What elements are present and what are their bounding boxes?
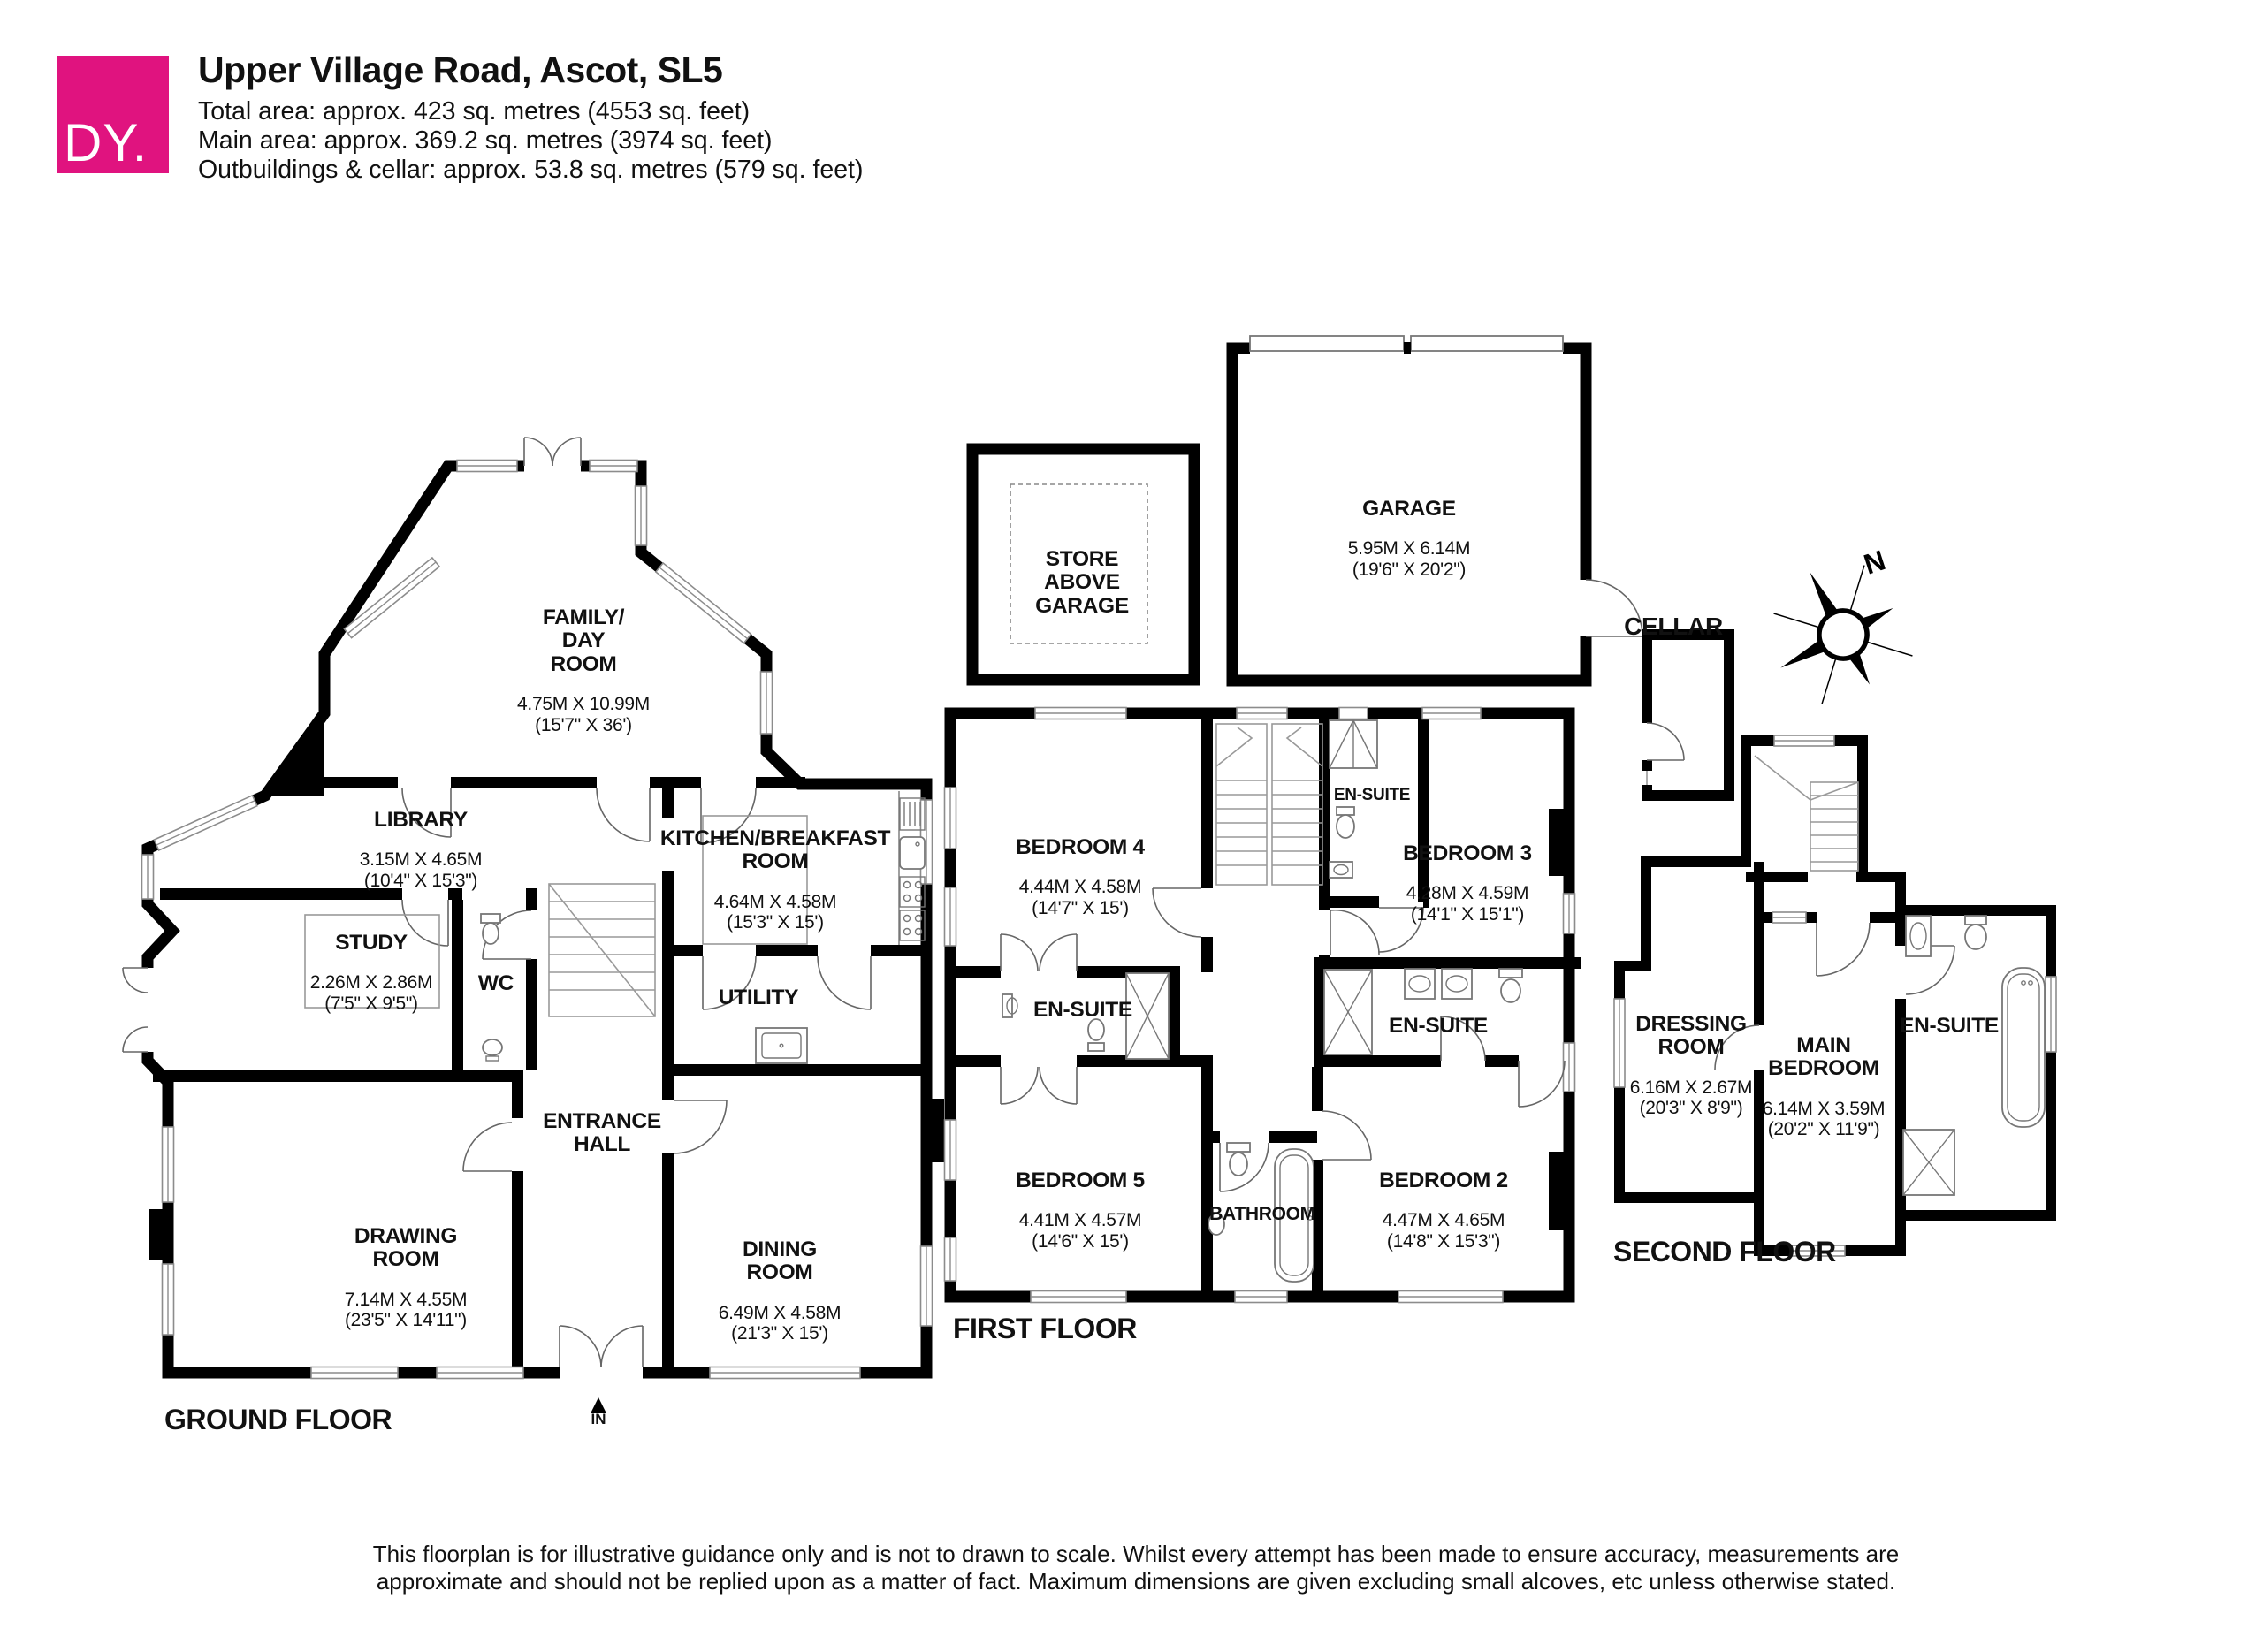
page-title: Upper Village Road, Ascot, SL5 bbox=[198, 49, 722, 91]
room-label-ensuite-right: EN-SUITE bbox=[1389, 999, 1488, 1054]
room-label-second-ensuite: EN-SUITE bbox=[1900, 999, 1999, 1054]
disclaimer-line-2: approximate and should not be replied up… bbox=[305, 1568, 1967, 1595]
room-label-main-bedroom: MAIN BEDROOM 6.14M X 3.59M (20'2" X 11'9… bbox=[1763, 1018, 1886, 1156]
compass-north-label: N bbox=[1860, 544, 1889, 580]
compass-rose: N bbox=[1771, 546, 1947, 714]
room-label-bedroom-5: BEDROOM 5 4.41M X 4.57M (14'6" X 15') bbox=[1016, 1153, 1145, 1268]
room-label-drawing-room: DRAWING ROOM 7.14M X 4.55M (23'5" X 14'1… bbox=[345, 1209, 468, 1347]
room-label-family-day-room: FAMILY/ DAY ROOM 4.75M X 10.99M (15'7" X… bbox=[517, 590, 650, 751]
room-label-ensuite-left: EN-SUITE bbox=[1033, 983, 1132, 1038]
room-label-ensuite-top: EN-SUITE bbox=[1334, 771, 1410, 821]
wc-toilet-icon bbox=[481, 914, 500, 944]
entrance-in-label: IN bbox=[591, 1411, 606, 1428]
room-label-cellar: CELLAR bbox=[1624, 598, 1723, 656]
room-label-bedroom-4: BEDROOM 4 4.44M X 4.58M (14'7" X 15') bbox=[1016, 820, 1145, 934]
garage-doors bbox=[1250, 336, 1563, 354]
room-label-library: LIBRARY 3.15M X 4.65M (10'4" X 15'3") bbox=[360, 793, 483, 907]
floorplan-page: { "header": { "logo_text": "DY.", "title… bbox=[0, 0, 2263, 1652]
room-label-store-above-garage: STORE ABOVE GARAGE bbox=[1035, 532, 1129, 634]
utility-sink-icon bbox=[756, 1028, 807, 1063]
brand-logo: DY. bbox=[57, 56, 169, 173]
room-label-dressing-room: DRESSING ROOM 6.16M X 2.67M (20'3" X 8'9… bbox=[1630, 997, 1753, 1135]
cellar-outer-walls bbox=[1647, 635, 1729, 796]
area-summary: Total area: approx. 423 sq. metres (4553… bbox=[198, 97, 863, 185]
compass-star bbox=[1748, 545, 1920, 718]
second-floor-label: SECOND FLOOR bbox=[1613, 1236, 1836, 1268]
room-label-entrance-hall: ENTRANCE HALL bbox=[543, 1094, 661, 1173]
room-label-dining-room: DINING ROOM 6.49M X 4.58M (21'3" X 15') bbox=[719, 1222, 842, 1360]
room-label-utility: UTILITY bbox=[719, 971, 798, 1025]
room-label-wc: WC bbox=[478, 956, 514, 1011]
brand-logo-text: DY. bbox=[57, 117, 148, 173]
room-label-bathroom: BATHROOM bbox=[1209, 1189, 1315, 1241]
disclaimer: This floorplan is for illustrative guida… bbox=[305, 1541, 1967, 1595]
disclaimer-line-1: This floorplan is for illustrative guida… bbox=[305, 1541, 1967, 1568]
room-label-garage: GARAGE 5.95M X 6.14M (19'6" X 20'2") bbox=[1348, 482, 1471, 596]
room-label-bedroom-2: BEDROOM 2 4.47M X 4.65M (14'8" X 15'3") bbox=[1379, 1153, 1508, 1268]
room-label-study: STUDY 2.26M X 2.86M (7'5" X 9'5") bbox=[310, 916, 433, 1030]
room-label-bedroom-3: BEDROOM 3 4.28M X 4.59M (14'1" X 15'1") bbox=[1403, 826, 1532, 940]
second-outer-walls bbox=[1619, 741, 2051, 1251]
first-floor-label: FIRST FLOOR bbox=[953, 1313, 1137, 1345]
ground-floor-label: GROUND FLOOR bbox=[164, 1404, 392, 1436]
room-label-kitchen: KITCHEN/BREAKFAST ROOM 4.64M X 4.58M (15… bbox=[660, 811, 890, 949]
